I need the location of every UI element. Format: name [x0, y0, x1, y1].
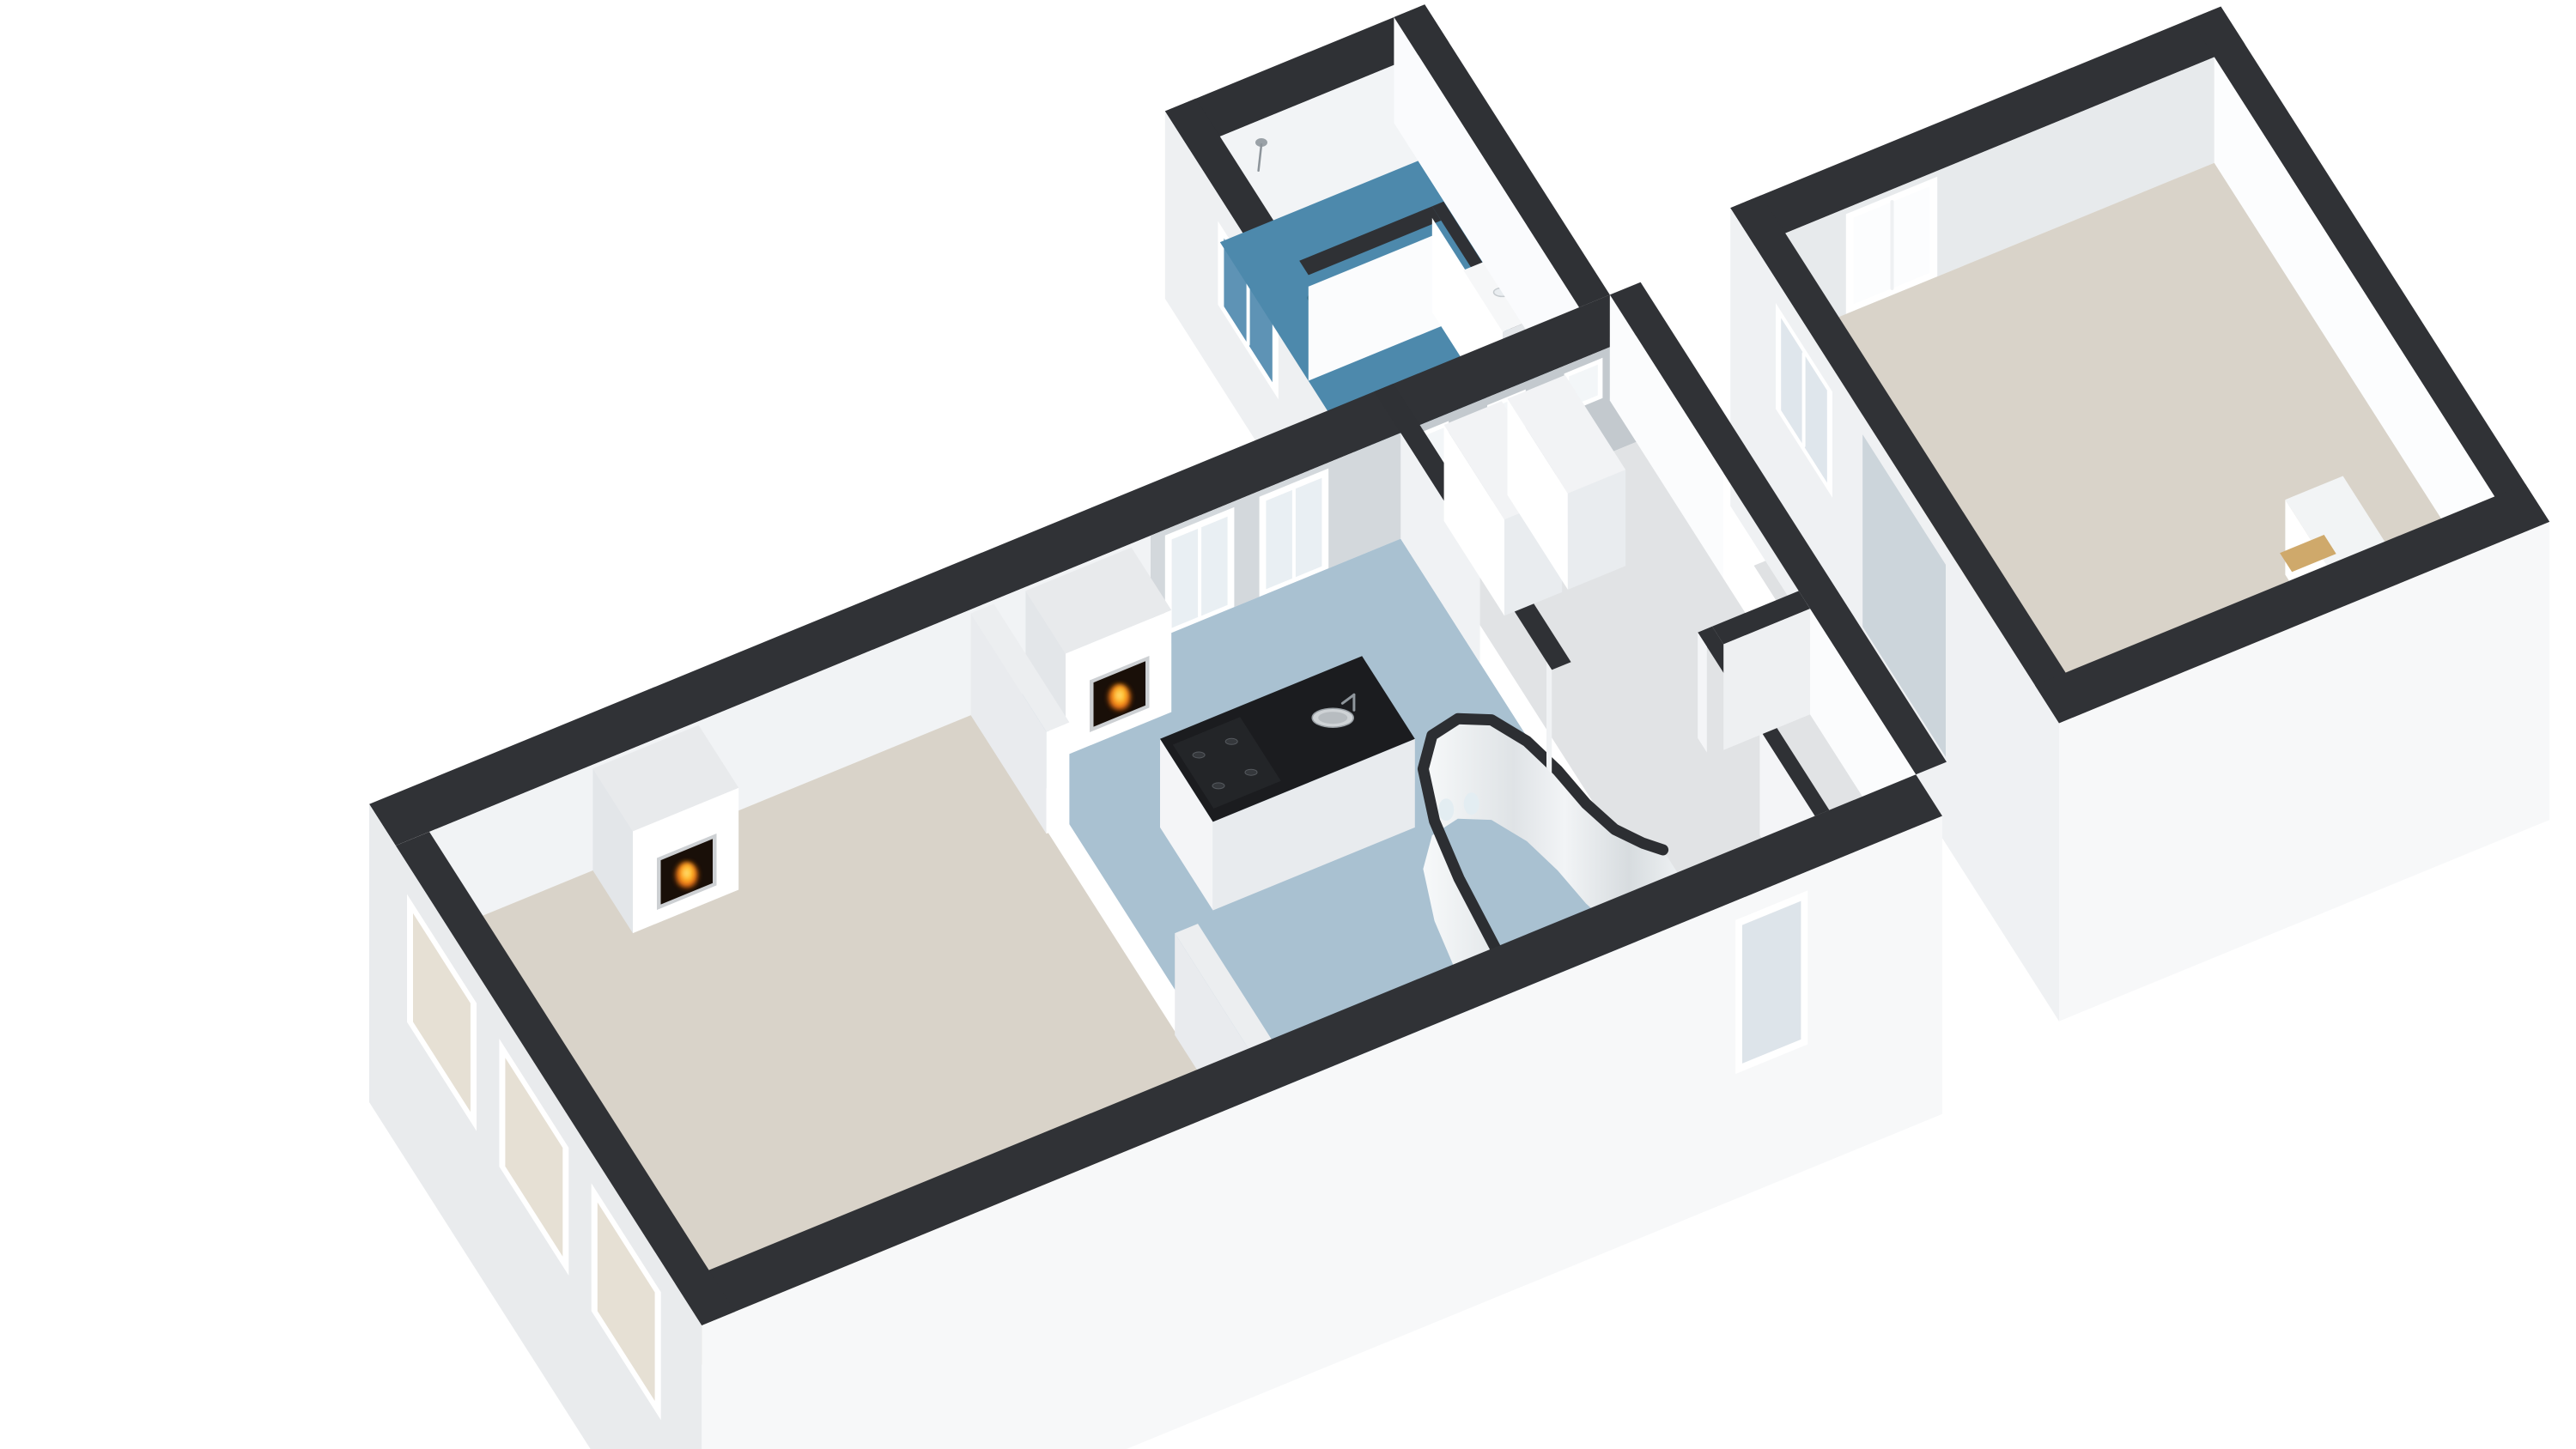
pod-arch-niche-2: [1464, 792, 1479, 815]
kitchen-fire: [1109, 685, 1130, 710]
living-room-fire: [676, 863, 697, 888]
vestibule-sw-wall-face-a: [1698, 633, 1707, 753]
living-room-fire-flame: [684, 870, 689, 877]
floorplan-3d-render: [0, 0, 2576, 1449]
partition-pillar-a-front-face: [1047, 723, 1070, 834]
hob-burner-2: [1212, 783, 1224, 789]
hall-entry-door-glass: [1742, 901, 1801, 1064]
hob-burner-3: [1225, 738, 1237, 744]
pod-arch-niche-1: [1438, 798, 1454, 821]
hob-burner-1: [1193, 752, 1205, 758]
scene-root: [369, 4, 2549, 1449]
floorplan-canvas: [0, 0, 2576, 1449]
kitchen-fire-flame: [1117, 692, 1121, 700]
kitchen-hall-wall-face-b: [1546, 662, 1552, 776]
island-sink-basin: [1318, 712, 1347, 724]
hob-burner-4: [1245, 769, 1257, 775]
